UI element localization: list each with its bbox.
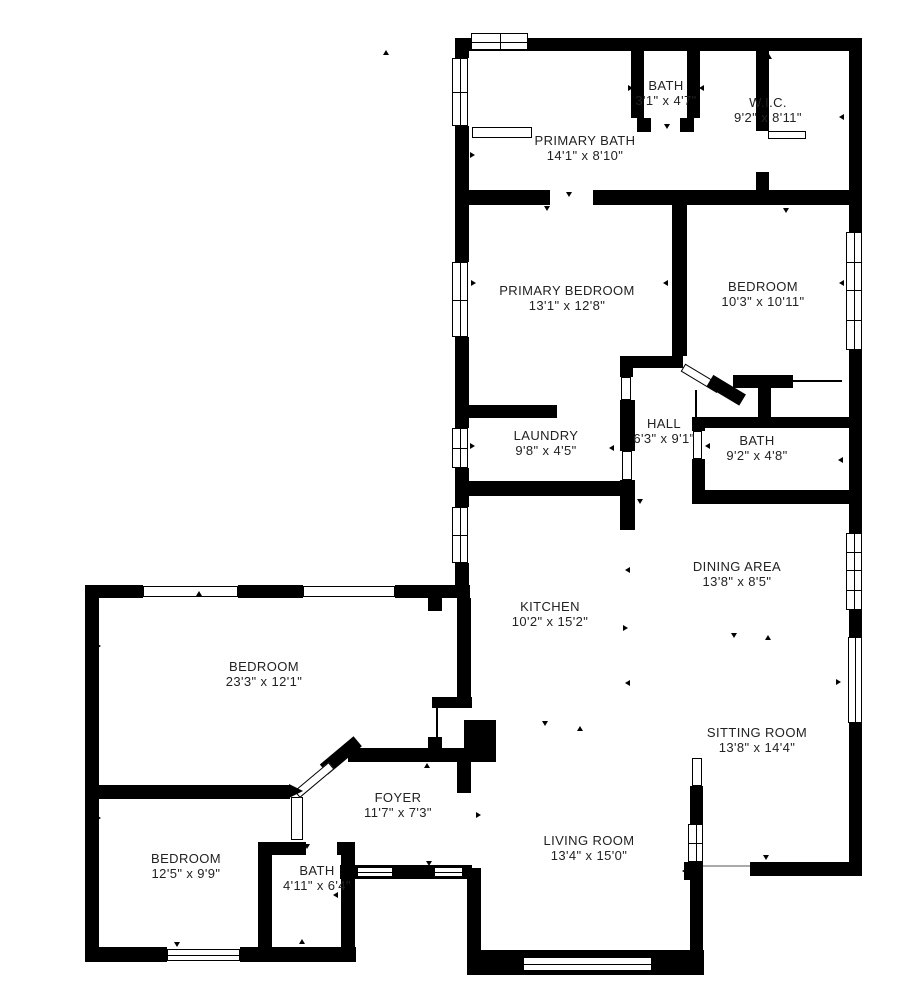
room-name: BATH [283,863,351,878]
door-leaf [692,758,702,786]
direction-tick-icon [470,152,475,158]
wall-segment [432,697,472,708]
window [846,290,862,350]
room-dimensions: 9'2" x 8'11" [734,110,802,125]
room-dimensions: 3'1" x 4'7" [635,93,696,108]
room-label-hall: HALL 6'3" x 9'1" [633,416,694,446]
direction-tick-icon [765,635,771,640]
wall-segment [849,723,862,875]
direction-tick-icon [628,85,633,91]
room-name: BEDROOM [151,851,221,866]
room-name: W.I.C. [734,95,802,110]
direction-tick-icon [261,892,266,898]
direction-tick-icon [705,443,710,449]
wall-segment [258,842,306,855]
direction-tick-icon [424,763,430,768]
direction-tick-icon [839,280,844,286]
wall-segment [85,785,290,799]
room-label-bath-top: BATH 3'1" x 4'7" [635,78,696,108]
direction-tick-icon [174,792,180,797]
room-label-sitting-room: SITTING ROOM 13'8" x 14'4" [707,725,807,755]
room-dimensions: 12'5" x 9'9" [151,866,221,881]
door-leaf [621,377,631,400]
direction-tick-icon [174,942,180,947]
direction-tick-icon [838,457,843,463]
room-label-foyer: FOYER 11'7" x 7'3" [364,790,432,820]
room-label-kitchen: KITCHEN 10'2" x 15'2" [512,599,589,629]
wall-segment [690,880,703,963]
wall-segment [750,862,862,876]
wall-segment [593,190,862,205]
direction-tick-icon [544,206,550,211]
room-name: HALL [633,416,694,431]
wall-segment [758,388,771,418]
room-dimensions: 13'8" x 8'5" [693,574,781,589]
direction-tick-icon [731,633,737,638]
window [452,58,468,126]
wall-segment [620,368,633,377]
wall-segment [733,375,793,388]
room-dimensions: 11'7" x 7'3" [364,805,432,820]
wall-segment [455,481,635,496]
room-label-primary-bedroom: PRIMARY BEDROOM 13'1" x 12'8" [499,283,635,313]
door-leaf [622,451,632,480]
direction-tick-icon [763,491,769,496]
room-dimensions: 10'2" x 15'2" [512,614,589,629]
direction-tick-icon [542,721,548,726]
direction-tick-icon [566,192,572,197]
window [471,33,528,50]
wall-segment [692,490,862,504]
room-label-bath-mid: BATH 9'2" x 4'8" [726,433,787,463]
door-leaf [768,131,806,139]
room-name: PRIMARY BATH [535,133,636,148]
door-arrow-icon [289,784,303,798]
room-name: FOYER [364,790,432,805]
direction-tick-icon [96,643,101,649]
direction-tick-icon [783,208,789,213]
window [452,428,468,468]
room-dimensions: 9'8" x 4'5" [514,443,579,458]
room-dimensions: 23'3" x 12'1" [226,674,303,689]
wall-segment [455,190,550,205]
closet-door-line [436,708,438,738]
direction-tick-icon [471,280,476,286]
direction-tick-icon [576,952,582,957]
wall-segment [85,585,99,962]
door-leaf [291,797,303,840]
room-name: BEDROOM [226,659,303,674]
direction-tick-icon [476,812,481,818]
direction-tick-icon [763,855,769,860]
window [848,637,862,723]
direction-tick-icon [299,939,305,944]
direction-tick-icon [625,567,630,573]
direction-tick-icon [839,114,844,120]
direction-tick-icon [663,280,668,286]
wall-segment [455,38,469,58]
wall-segment [428,598,442,611]
wall-segment [637,118,651,132]
room-dimensions: 4'11" x 6'4" [283,878,351,893]
window [452,507,468,563]
floor-plan: PRIMARY BATH 14'1" x 8'10" BATH 3'1" x 4… [0,0,918,1000]
direction-tick-icon [609,445,614,451]
direction-tick-icon [470,443,475,449]
direction-tick-icon [194,786,200,791]
wall-segment [457,598,471,698]
direction-tick-icon [699,85,704,91]
direction-tick-icon [383,50,389,55]
wall-segment [348,748,466,762]
room-label-living-room: LIVING ROOM 13'4" x 15'0" [543,833,634,863]
door-leaf [472,127,532,138]
wall-segment [341,842,355,962]
direction-tick-icon [623,625,628,631]
direction-tick-icon [196,591,202,596]
direction-tick-icon [96,815,101,821]
wall-segment [849,350,862,533]
wall-segment [395,585,470,598]
window [167,949,240,961]
window [846,570,862,610]
direction-tick-icon [625,680,630,686]
wall-segment [457,762,471,793]
window [452,262,468,337]
wall-segment [672,203,687,356]
direction-tick-icon [766,54,772,59]
threshold-line [703,865,750,867]
wall-segment [692,417,862,428]
room-label-wic: W.I.C. 9'2" x 8'11" [734,95,802,125]
room-name: LIVING ROOM [543,833,634,848]
wall-segment [849,610,862,637]
room-label-bedroom-ne: BEDROOM 10'3" x 10'11" [721,279,804,309]
window [846,232,862,291]
room-name: DINING AREA [693,559,781,574]
window [846,533,862,571]
wall-segment [464,720,496,762]
room-name: LAUNDRY [514,428,579,443]
direction-tick-icon [304,844,310,849]
wall-segment [238,585,303,598]
wall-segment [85,947,167,962]
direction-tick-icon [664,124,670,129]
room-dimensions: 10'3" x 10'11" [721,294,804,309]
room-name: PRIMARY BEDROOM [499,283,635,298]
closet-door-line [792,380,842,382]
room-label-dining-area: DINING AREA 13'8" x 8'5" [693,559,781,589]
room-name: SITTING ROOM [707,725,807,740]
room-label-primary-bath: PRIMARY BATH 14'1" x 8'10" [535,133,636,163]
room-name: BATH [635,78,696,93]
window [303,586,395,597]
room-label-laundry: LAUNDRY 9'8" x 4'5" [514,428,579,458]
room-dimensions: 13'4" x 15'0" [543,848,634,863]
direction-tick-icon [682,868,687,874]
room-label-bedroom-sw: BEDROOM 12'5" x 9'9" [151,851,221,881]
wall-segment [690,786,703,824]
wall-segment [620,356,683,368]
direction-tick-icon [426,861,432,866]
room-dimensions: 6'3" x 9'1" [633,431,694,446]
wall-segment [240,947,356,962]
direction-tick-icon [637,499,643,504]
closet-door-line [695,390,697,417]
direction-tick-icon [836,679,841,685]
window [523,957,652,971]
room-name: BATH [726,433,787,448]
direction-tick-icon [763,420,769,425]
direction-tick-icon [577,726,583,731]
room-dimensions: 13'1" x 12'8" [499,298,635,313]
wall-segment [467,868,481,960]
window [688,824,703,862]
window [143,586,238,597]
wall-segment [680,118,694,132]
room-dimensions: 14'1" x 8'10" [535,148,636,163]
room-dimensions: 9'2" x 4'8" [726,448,787,463]
direction-tick-icon [541,407,547,412]
room-dimensions: 13'8" x 14'4" [707,740,807,755]
window [357,867,393,877]
window [434,867,463,877]
room-name: BEDROOM [721,279,804,294]
room-label-bedroom-west: BEDROOM 23'3" x 12'1" [226,659,303,689]
room-name: KITCHEN [512,599,589,614]
room-label-bath-sw: BATH 4'11" x 6'4" [283,863,351,893]
